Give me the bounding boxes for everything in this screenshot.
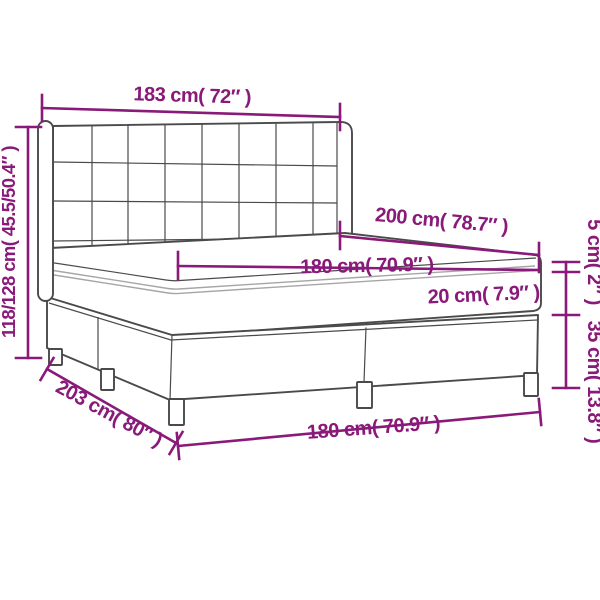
dim-lip-height-label: 5 cm( 2″ ) bbox=[583, 219, 600, 305]
leg-front-left bbox=[169, 399, 184, 425]
leg-front-middle bbox=[357, 382, 372, 408]
leg-side-middle bbox=[101, 369, 114, 390]
leg-front-right bbox=[524, 373, 538, 396]
tick bbox=[539, 399, 541, 425]
bed-drawing bbox=[38, 121, 541, 425]
dim-base-width-label: 180 cm( 70.9″ ) bbox=[306, 412, 441, 444]
dim-mattress-length-label: 200 cm( 78.7″ ) bbox=[374, 204, 509, 238]
dim-right-column: 5 cm( 2″ ) 35 cm( 13.8″ ) bbox=[553, 219, 600, 443]
dim-overall-height: 118/128 cm( 45.5/50.4″ ) bbox=[0, 127, 41, 358]
bed-dimension-diagram: 183 cm( 72″ ) 118/128 cm( 45.5/50.4″ ) 2… bbox=[0, 0, 600, 600]
dim-base-height-label: 35 cm( 13.8″ ) bbox=[583, 321, 600, 444]
dim-overall-height-label: 118/128 cm( 45.5/50.4″ ) bbox=[0, 146, 19, 338]
dim-headboard-width-label: 183 cm( 72″ ) bbox=[133, 83, 251, 108]
tick bbox=[41, 358, 54, 380]
dim-mattress-width-label: 180 cm( 70.9″ ) bbox=[300, 254, 434, 279]
headboard-left-wing bbox=[38, 121, 53, 301]
